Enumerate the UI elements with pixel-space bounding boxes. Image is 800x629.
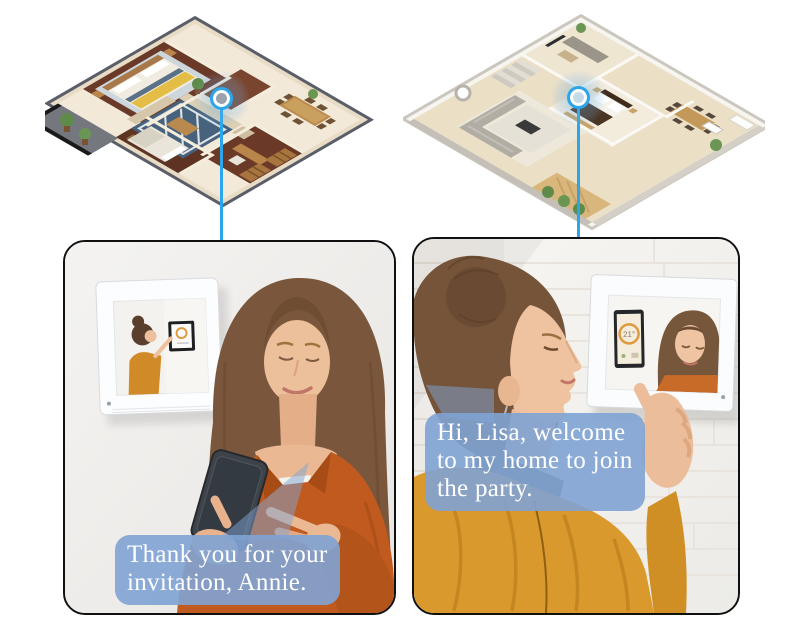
round-window [456, 86, 470, 100]
thermostat-reading: 21° [623, 330, 635, 339]
mini-smart-display: 21° [614, 310, 645, 369]
intercom-marketing-graphic: Thank you for your invitation, Annie. [0, 0, 800, 629]
neck [279, 394, 317, 447]
photo-right: 21° [412, 237, 740, 615]
mini-woman-shirt [656, 373, 719, 393]
speech-bubble-right: Hi, Lisa, welcome to my home to join the… [425, 413, 645, 511]
marker-ring [567, 86, 590, 109]
photo-left: Thank you for your invitation, Annie. [63, 240, 396, 615]
connector-line-right [577, 107, 580, 237]
speech-bubble-left: Thank you for your invitation, Annie. [115, 535, 340, 605]
connector-line-left [220, 108, 223, 240]
marker-ring [210, 87, 233, 110]
ear [498, 376, 520, 406]
mini-woman-shirt [127, 351, 162, 394]
hair-bun [446, 267, 506, 327]
intercom-panel-left [96, 277, 232, 425]
